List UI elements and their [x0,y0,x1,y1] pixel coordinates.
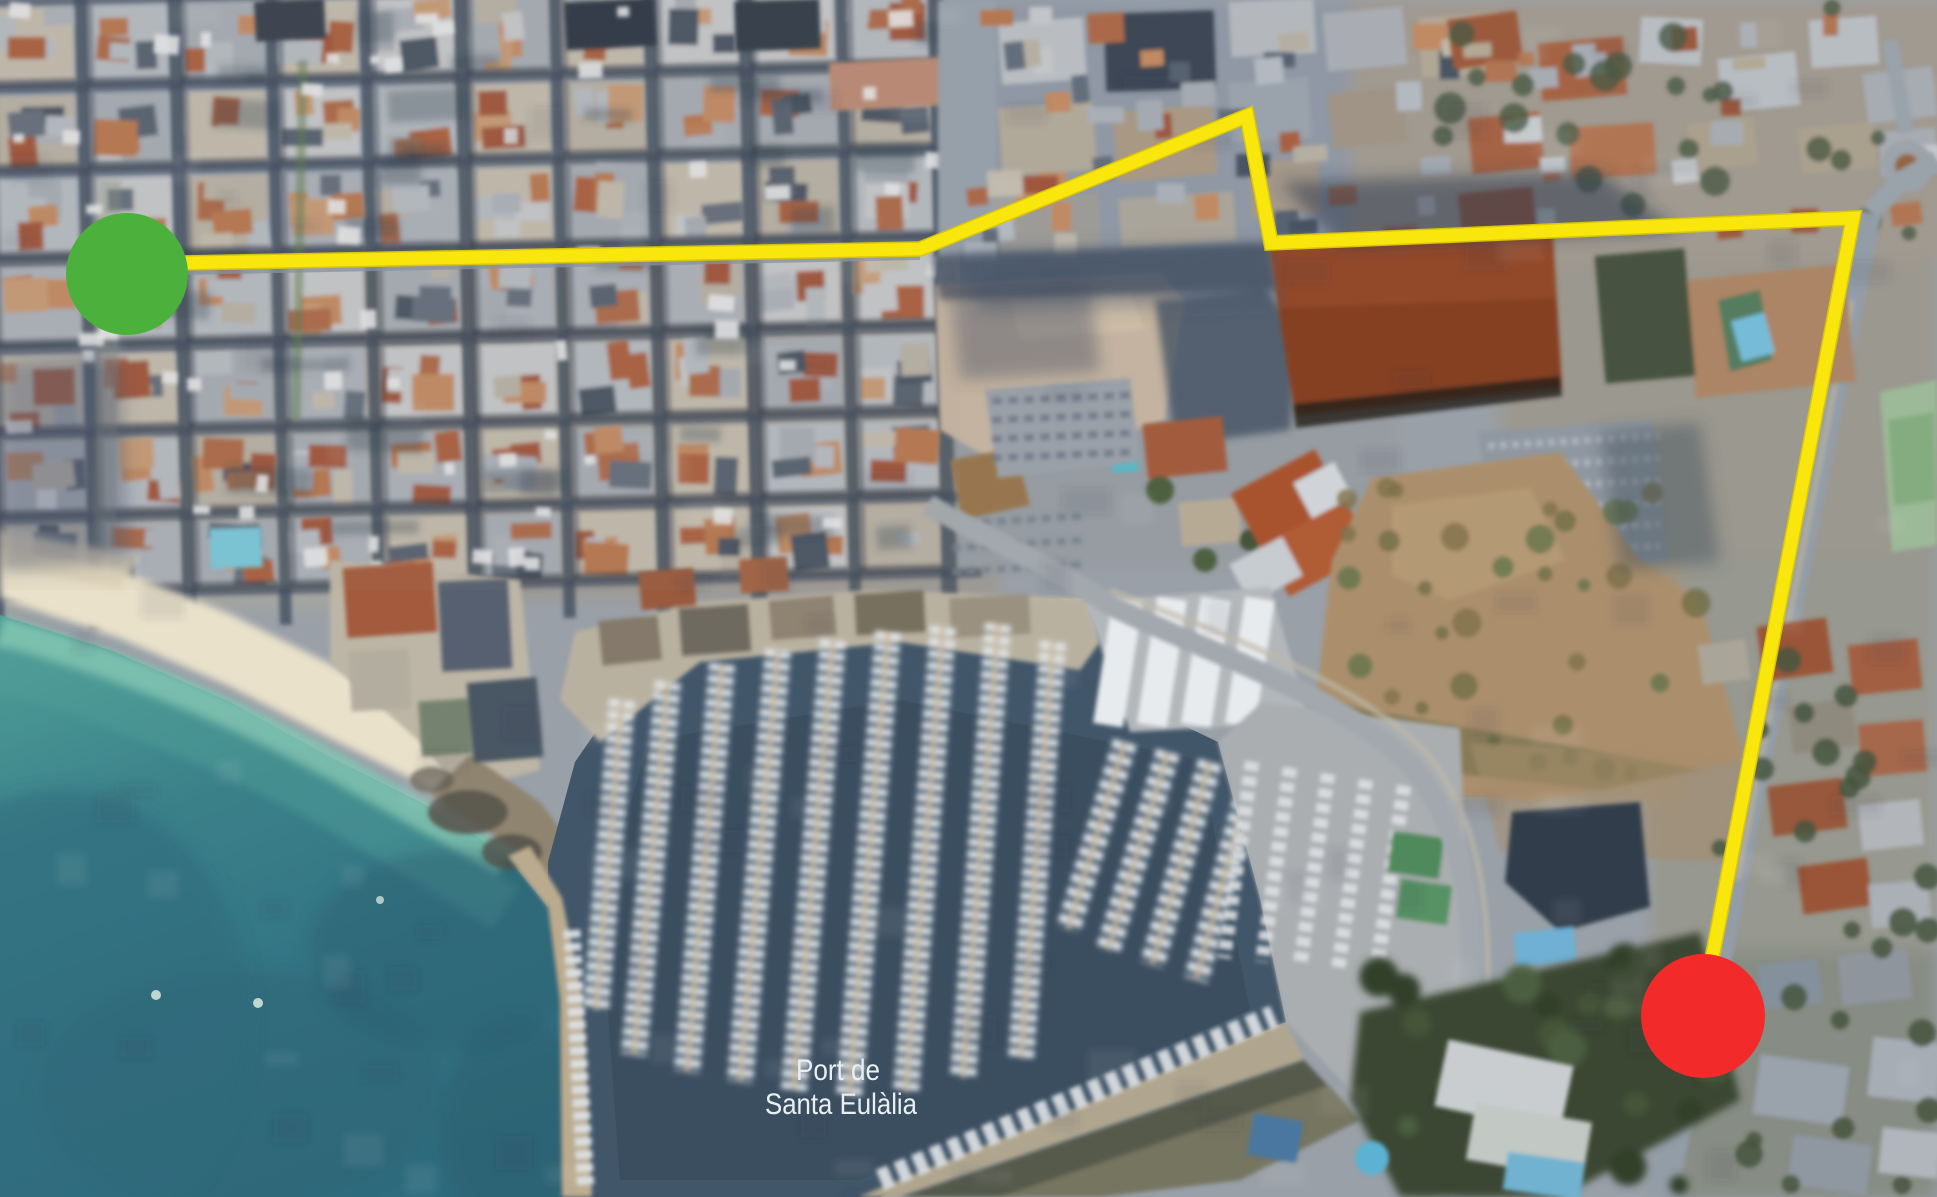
svg-text:Port de: Port de [796,1054,880,1087]
svg-text:Santa Eulàlia: Santa Eulàlia [765,1088,917,1121]
